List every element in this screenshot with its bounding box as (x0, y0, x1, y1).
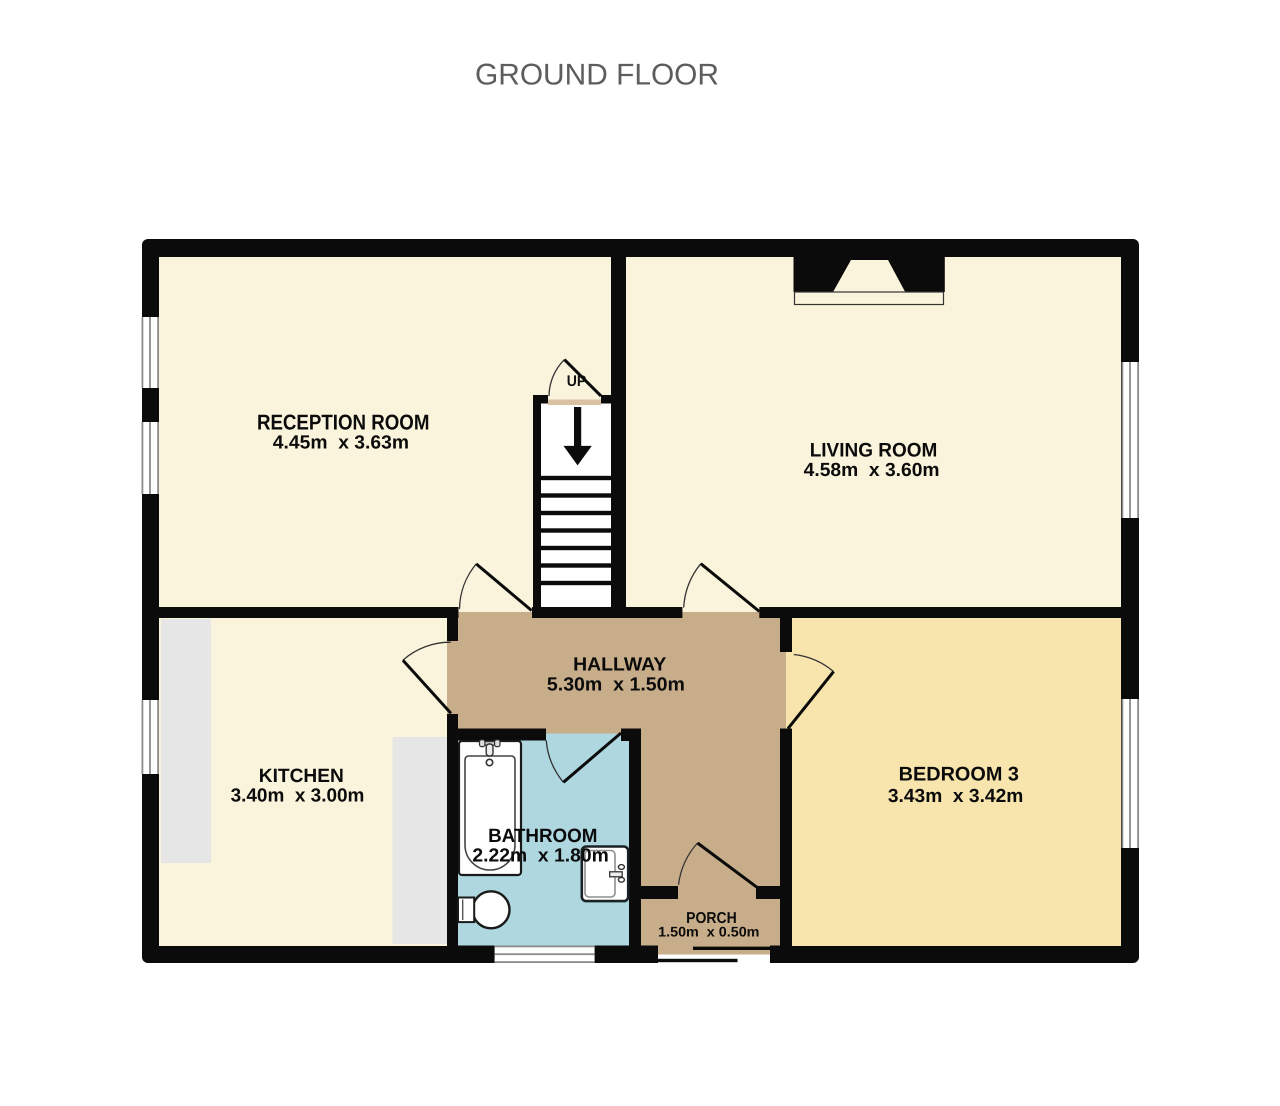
svg-text:3.43m x 3.42m: 3.43m x 3.42m (888, 786, 1023, 807)
svg-text:GROUND FLOOR: GROUND FLOOR (475, 59, 719, 92)
svg-text:5.30m x 1.50m: 5.30m x 1.50m (547, 675, 685, 696)
svg-text:LIVING ROOM: LIVING ROOM (810, 440, 938, 462)
svg-text:HALLWAY: HALLWAY (573, 655, 667, 676)
svg-text:4.58m x 3.60m: 4.58m x 3.60m (804, 460, 940, 481)
svg-text:2.22m x 1.80m: 2.22m x 1.80m (472, 845, 608, 866)
svg-text:4.45m x 3.63m: 4.45m x 3.63m (273, 432, 409, 453)
svg-text:RECEPTION ROOM: RECEPTION ROOM (257, 411, 430, 435)
svg-text:UP: UP (567, 373, 587, 390)
svg-text:KITCHEN: KITCHEN (259, 766, 344, 787)
svg-text:BEDROOM 3: BEDROOM 3 (899, 764, 1019, 786)
svg-text:1.50m x 0.50m: 1.50m x 0.50m (658, 924, 759, 940)
svg-text:3.40m x 3.00m: 3.40m x 3.00m (231, 785, 365, 806)
svg-text:BATHROOM: BATHROOM (488, 826, 597, 847)
